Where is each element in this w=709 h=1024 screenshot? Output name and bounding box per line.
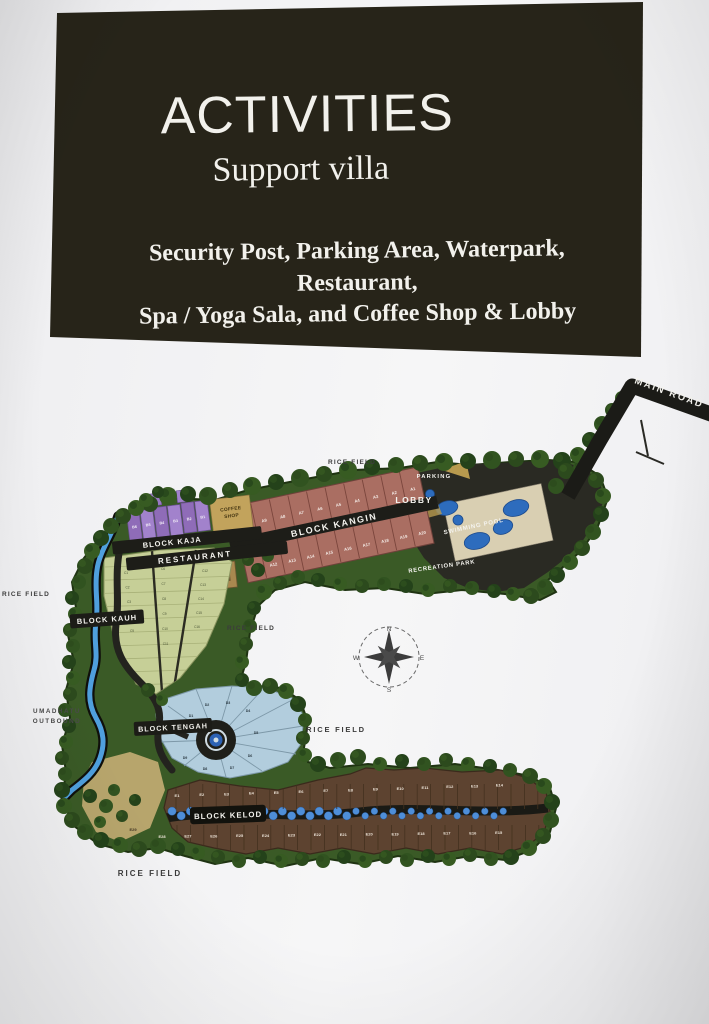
slide-description-line: Security Post, Parking Area, Waterpark, … — [107, 233, 608, 302]
kelod-water — [177, 812, 185, 820]
tree — [171, 842, 185, 856]
tree — [545, 814, 552, 821]
tree — [400, 853, 414, 867]
tree — [444, 580, 450, 586]
tree — [588, 472, 604, 488]
compass-rose: N E S W — [353, 626, 425, 694]
tree — [212, 851, 218, 857]
compass-north: N — [387, 626, 392, 633]
plot-label: B5 — [146, 523, 151, 528]
tree — [422, 584, 428, 590]
tree — [291, 469, 309, 487]
tree — [374, 758, 380, 764]
kelod-water — [168, 807, 176, 815]
tree — [539, 581, 546, 588]
tree — [66, 814, 73, 821]
tree — [523, 588, 539, 604]
tree — [421, 849, 435, 863]
svg-text:D2: D2 — [205, 703, 210, 707]
tree — [504, 764, 510, 770]
tree — [108, 784, 120, 796]
tree — [77, 558, 93, 574]
tree — [235, 655, 249, 669]
tree — [483, 759, 497, 773]
tree — [268, 474, 284, 490]
plot-label: C15 — [196, 611, 202, 615]
tree — [222, 482, 238, 498]
plot-label: C16 — [194, 625, 200, 629]
tree — [312, 758, 319, 765]
tree — [73, 576, 79, 582]
tree — [152, 486, 164, 498]
plot-label: C1 — [124, 571, 128, 575]
plot-label: E22 — [314, 832, 322, 837]
tree — [399, 579, 413, 593]
tree — [524, 770, 531, 777]
tree — [437, 455, 445, 463]
plot-label: E25 — [236, 833, 244, 838]
tree — [585, 524, 601, 540]
tree — [334, 578, 340, 584]
tree — [292, 571, 298, 577]
plot-label: E5 — [274, 790, 280, 795]
plot-label: E19 — [392, 831, 400, 836]
tree — [293, 471, 301, 479]
svg-text:D1: D1 — [189, 714, 194, 718]
tree — [273, 576, 287, 590]
rice-field-label: RICE FIELD — [227, 625, 275, 632]
plot-label: E11 — [422, 785, 430, 790]
tree — [239, 637, 253, 651]
slide-subtitle: Support villa — [51, 148, 551, 192]
tree — [548, 478, 564, 494]
kelod-water — [426, 808, 433, 815]
tree — [264, 680, 271, 687]
tree — [109, 785, 114, 790]
tree — [546, 796, 553, 803]
tree — [412, 455, 428, 471]
tree — [422, 850, 428, 856]
block-kelod-label: BLOCK KELOD — [190, 805, 267, 825]
tree — [112, 837, 128, 853]
slide-description-line: Spa / Yoga Sala, and Coffee Shop & Lobby — [107, 296, 607, 334]
plot-label: E14 — [496, 783, 504, 788]
tree — [62, 655, 76, 669]
tree — [182, 488, 189, 495]
tree — [299, 749, 305, 755]
tree — [256, 584, 272, 600]
tree — [139, 493, 153, 507]
tree — [395, 754, 409, 768]
tree — [63, 687, 77, 701]
tree — [506, 587, 520, 601]
tree — [63, 656, 69, 662]
tree — [56, 798, 72, 814]
tree — [551, 569, 558, 576]
tree — [317, 855, 323, 861]
tree — [462, 758, 468, 764]
compass-south: S — [387, 687, 392, 694]
tree — [66, 592, 72, 598]
plot-label: C9 — [162, 612, 166, 616]
tree — [192, 847, 198, 853]
tree — [564, 556, 571, 563]
svg-text:D9: D9 — [183, 756, 188, 760]
plot-label: C14 — [198, 597, 204, 601]
tree — [373, 757, 387, 771]
kelod-water — [362, 812, 369, 819]
tree — [359, 855, 365, 861]
tree — [199, 487, 217, 505]
kelod-water — [435, 812, 442, 819]
tree — [576, 542, 583, 549]
plot-label: C3 — [127, 600, 131, 604]
tree — [291, 570, 305, 584]
slide-title: ACTIVITIES — [57, 82, 558, 148]
tree — [587, 526, 594, 533]
tree — [56, 752, 62, 758]
tree — [460, 453, 476, 469]
compass-west: W — [353, 655, 360, 662]
tree — [330, 752, 346, 768]
tree — [311, 573, 325, 587]
tree — [58, 767, 72, 781]
tree — [312, 574, 318, 580]
tree — [461, 757, 475, 771]
tree — [232, 854, 246, 868]
tree — [337, 850, 351, 864]
kelod-water — [269, 812, 277, 820]
kelod-water — [343, 812, 351, 820]
tree — [464, 849, 470, 855]
tree — [593, 506, 609, 522]
tree — [543, 812, 559, 828]
plot-label: C5 — [130, 629, 134, 633]
tree — [240, 638, 246, 644]
tree — [316, 854, 330, 868]
svg-text:D8: D8 — [203, 767, 208, 771]
tree — [129, 794, 141, 806]
kelod-water — [454, 812, 461, 819]
tree — [440, 754, 446, 760]
kelod-water — [481, 808, 488, 815]
kelod-water — [491, 812, 498, 819]
tree — [100, 800, 106, 806]
tree — [236, 674, 242, 680]
tree — [418, 758, 424, 764]
tree — [310, 756, 326, 772]
kelod-water — [315, 807, 323, 815]
tree — [462, 455, 469, 462]
tree — [86, 545, 93, 552]
tree — [538, 780, 545, 787]
plot-label: C7 — [161, 582, 165, 586]
tree — [236, 656, 242, 662]
tree — [79, 560, 86, 567]
kelod-water — [472, 812, 479, 819]
rice-field-label: RICE FIELD — [118, 869, 182, 878]
plot-label: E29 — [129, 827, 137, 832]
tree — [67, 672, 73, 678]
tree — [64, 624, 70, 630]
tree — [523, 842, 530, 849]
tree — [72, 575, 86, 589]
tree — [417, 757, 431, 771]
plot-label: E24 — [262, 833, 270, 838]
tree — [483, 451, 501, 469]
tree — [380, 851, 386, 857]
tree — [487, 584, 501, 598]
tree — [484, 852, 498, 866]
tree — [67, 640, 73, 646]
tree — [390, 459, 397, 466]
tree — [503, 849, 519, 865]
svg-text:D5: D5 — [254, 731, 259, 735]
plot-label: B1 — [200, 515, 205, 520]
tree — [296, 853, 302, 859]
plot-label: C6 — [161, 567, 165, 571]
tree — [442, 852, 456, 866]
tree — [358, 854, 372, 868]
tree — [142, 684, 148, 690]
slide-photo: { "slide": { "title": "ACTIVITIES", "sub… — [0, 0, 709, 1024]
kelod-water — [463, 808, 470, 815]
tree — [152, 840, 159, 847]
tree — [355, 579, 369, 593]
plot-label: E13 — [471, 783, 479, 788]
umadhatu-outbound-label: OUTBOUND — [33, 718, 81, 725]
tree — [117, 510, 124, 517]
tree — [130, 502, 137, 509]
tree — [401, 854, 407, 860]
tree — [130, 795, 135, 800]
plot-label: E1 — [175, 793, 181, 798]
plot-label: E2 — [199, 792, 205, 797]
tree — [191, 846, 205, 860]
tree — [574, 540, 590, 556]
tree — [66, 639, 80, 653]
tree — [275, 855, 281, 861]
tree — [211, 850, 225, 864]
tree — [443, 853, 449, 859]
rice-field-label: RICE FIELD — [2, 591, 50, 598]
tree — [95, 834, 102, 841]
tree — [252, 564, 258, 570]
tree — [94, 816, 106, 828]
tree — [595, 508, 602, 515]
tree — [60, 736, 66, 742]
kelod-water — [306, 812, 314, 820]
tree — [316, 466, 332, 482]
tree — [116, 810, 128, 822]
tree — [298, 748, 312, 762]
kelod-water — [417, 812, 424, 819]
rice-field-label: RICE FIELD — [328, 459, 376, 466]
tree — [521, 840, 537, 856]
title-card-content: ACTIVITIES Support villa Security Post, … — [0, 0, 709, 366]
tree — [510, 453, 517, 460]
tree — [54, 782, 70, 798]
tree — [338, 851, 344, 857]
tree — [150, 838, 166, 854]
tree — [95, 817, 100, 822]
plot-label: E18 — [417, 831, 425, 836]
tree — [56, 784, 63, 791]
tree — [58, 800, 65, 807]
tree — [560, 465, 567, 472]
tree — [247, 601, 261, 615]
tree — [465, 581, 479, 595]
plot-label: E15 — [495, 830, 503, 835]
tree — [485, 453, 493, 461]
tree — [233, 855, 239, 861]
tree — [66, 671, 80, 685]
tree — [180, 486, 196, 502]
tree — [248, 682, 255, 689]
tree — [439, 753, 453, 767]
tree — [253, 850, 267, 864]
plot-label: E3 — [224, 791, 230, 796]
plot-label: E26 — [210, 833, 218, 838]
tree — [84, 790, 90, 796]
tree — [379, 850, 393, 864]
tree — [246, 680, 262, 696]
tree — [84, 543, 100, 559]
tree — [141, 683, 155, 697]
tree — [114, 839, 121, 846]
svg-text:D3: D3 — [226, 701, 231, 705]
tree — [83, 789, 97, 803]
tree — [99, 799, 113, 813]
tree — [95, 532, 102, 539]
tree — [133, 843, 140, 850]
tree — [507, 588, 513, 594]
tree — [536, 778, 552, 794]
tree — [572, 449, 579, 456]
tree — [278, 683, 294, 699]
plot-label: E20 — [366, 832, 374, 837]
tree — [352, 751, 359, 758]
tree — [544, 794, 560, 810]
svg-text:D6: D6 — [248, 754, 253, 758]
tree — [254, 851, 260, 857]
tree — [243, 477, 261, 495]
kelod-water — [500, 808, 507, 815]
kelod-water — [324, 812, 332, 820]
tree — [64, 812, 80, 828]
tree — [505, 851, 512, 858]
tree — [295, 852, 309, 866]
parking-label: PARKING — [417, 474, 452, 480]
tree — [299, 714, 305, 720]
tree — [421, 583, 435, 597]
tree — [562, 554, 578, 570]
tree — [350, 749, 366, 765]
svg-text:D7: D7 — [230, 766, 235, 770]
tree — [290, 696, 306, 712]
tree — [153, 487, 158, 492]
tree — [356, 580, 362, 586]
tree — [525, 590, 532, 597]
tree — [466, 582, 472, 588]
tree — [396, 755, 402, 761]
plot-label: C2 — [125, 586, 129, 590]
tree — [463, 848, 477, 862]
tree — [555, 454, 563, 462]
plot-label: E16 — [469, 830, 477, 835]
tree — [251, 563, 265, 577]
umadhatu-outbound-label: UMADHATU — [33, 708, 81, 715]
tree — [172, 843, 178, 849]
tree — [522, 768, 538, 784]
plot-label: E27 — [184, 834, 192, 839]
plot-label: E10 — [397, 786, 405, 791]
tree — [258, 586, 265, 593]
tree — [157, 695, 162, 700]
tree — [537, 579, 553, 595]
plot-label: E23 — [288, 833, 296, 838]
plot-label: C12 — [202, 569, 208, 573]
kelod-water — [278, 807, 286, 815]
plot-label: C11 — [163, 642, 169, 646]
kelod-water — [287, 812, 295, 820]
rice-field-label: RICE FIELD — [306, 725, 366, 734]
tree — [535, 828, 551, 844]
tree — [333, 577, 347, 591]
tree — [140, 494, 146, 500]
plot-label: E12 — [446, 784, 454, 789]
tree — [201, 489, 209, 497]
plot-label: E6 — [299, 789, 305, 794]
kelod-water — [353, 808, 360, 815]
plot-label: B2 — [187, 517, 192, 522]
tree — [55, 751, 69, 765]
tree — [443, 579, 457, 593]
tree — [262, 678, 278, 694]
plot-label: E21 — [340, 832, 348, 837]
tree — [245, 479, 253, 487]
plot-label: B3 — [173, 519, 178, 524]
kelod-water — [297, 807, 305, 815]
tree — [274, 577, 280, 583]
tree — [508, 451, 524, 467]
tree — [377, 577, 391, 591]
tree — [597, 490, 604, 497]
tree — [414, 457, 421, 464]
lobby-label: LOBBY — [395, 495, 432, 505]
plot-label: B6 — [132, 525, 137, 530]
tree — [69, 608, 75, 614]
plot-label: E9 — [373, 787, 379, 792]
plot-label: E8 — [348, 787, 354, 792]
tree — [79, 826, 86, 833]
slide-description: Security Post, Parking Area, Waterpark, … — [107, 233, 608, 334]
plot-label: E17 — [443, 831, 451, 836]
tree — [378, 578, 384, 584]
tree — [332, 754, 339, 761]
tree — [537, 830, 544, 837]
tree — [59, 735, 73, 749]
tree — [59, 768, 65, 774]
tree — [93, 832, 109, 848]
tree — [64, 688, 70, 694]
tree — [274, 854, 288, 868]
tree — [65, 591, 79, 605]
kelod-water — [333, 807, 341, 815]
tree — [485, 853, 491, 859]
compass-east: E — [420, 655, 425, 662]
tree — [77, 824, 93, 840]
